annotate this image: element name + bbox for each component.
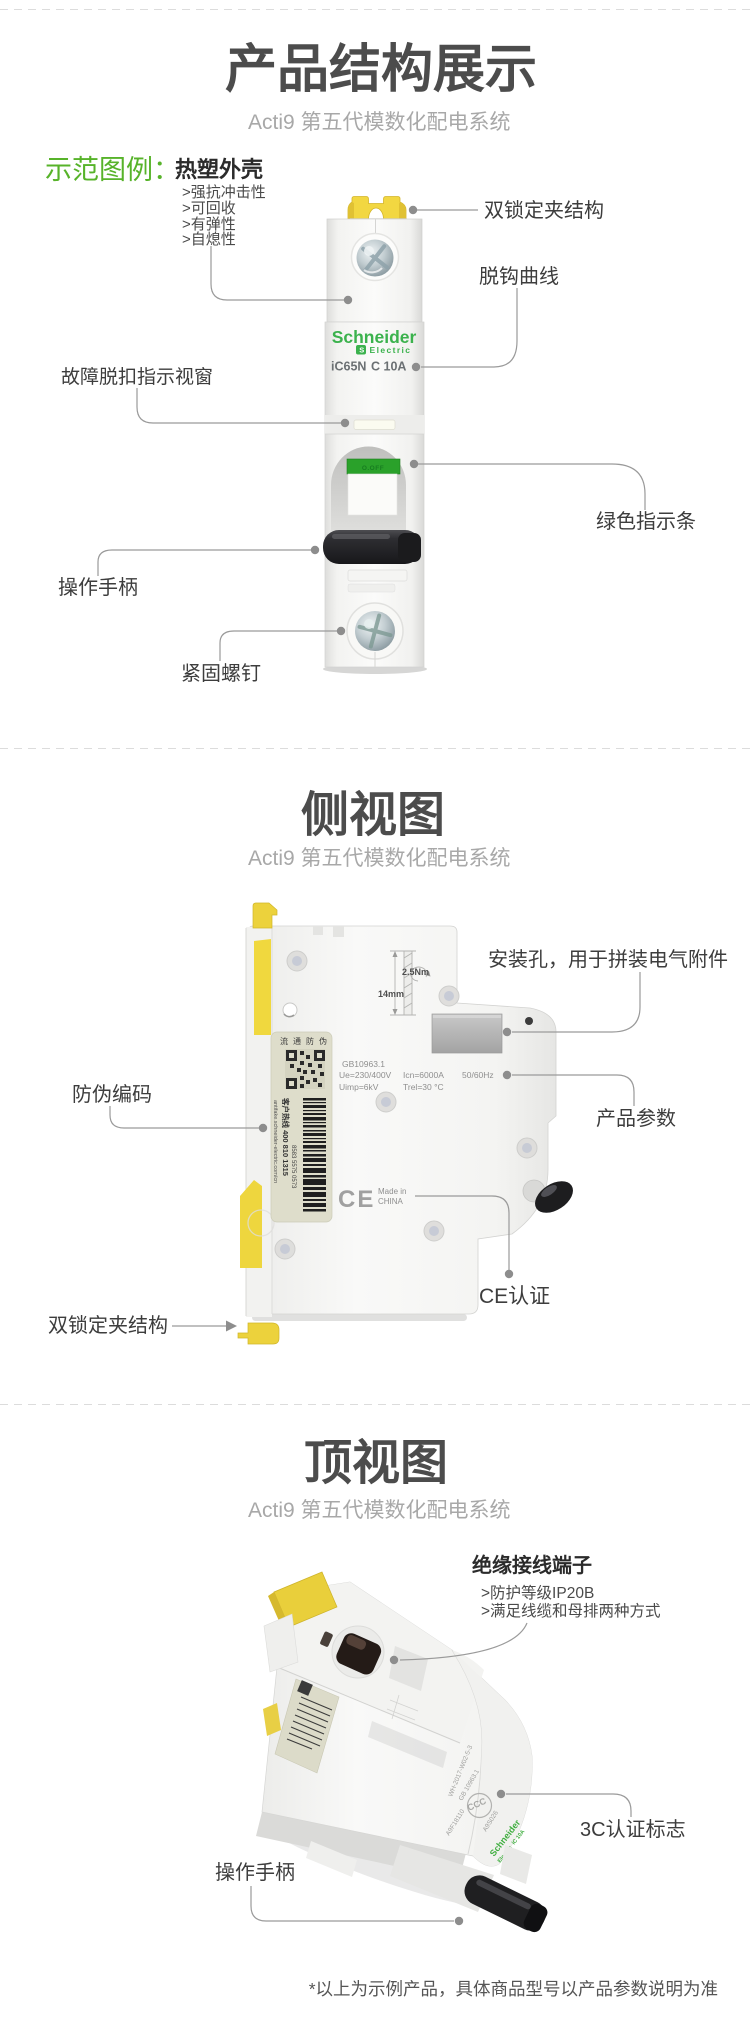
svg-text:Trel=30 °C: Trel=30 °C: [403, 1082, 444, 1092]
svg-text:Icn=6000A: Icn=6000A: [403, 1070, 444, 1080]
svg-text:antifake.schneider-electric.co: antifake.schneider-electric.com/cn: [272, 1100, 278, 1183]
svg-text:Uimp=6kV: Uimp=6kV: [339, 1082, 379, 1092]
svg-text:Made in: Made in: [378, 1187, 406, 1196]
svg-text:Electric: Electric: [370, 345, 412, 355]
svg-text:Ue=230/400V: Ue=230/400V: [339, 1070, 392, 1080]
svg-text:流通防伪: 流通防伪: [280, 1036, 332, 1046]
svg-text:C 10A: C 10A: [371, 360, 406, 374]
svg-text:CHINA: CHINA: [378, 1197, 404, 1206]
svg-text:Schneider: Schneider: [332, 327, 417, 347]
svg-text:2.5Nm: 2.5Nm: [402, 967, 429, 977]
svg-text:CE: CE: [338, 1186, 375, 1213]
svg-text:14mm: 14mm: [378, 989, 404, 999]
svg-text:iC65N: iC65N: [331, 360, 366, 374]
svg-text:50/60Hz: 50/60Hz: [462, 1070, 494, 1080]
svg-text:8583 5575 0573: 8583 5575 0573: [290, 1145, 296, 1189]
svg-text:S: S: [359, 345, 364, 354]
svg-text:客户热线 400 810 1315: 客户热线 400 810 1315: [281, 1097, 291, 1176]
svg-text:O.OFF: O.OFF: [362, 465, 384, 472]
svg-text:GB10963.1: GB10963.1: [342, 1059, 385, 1069]
